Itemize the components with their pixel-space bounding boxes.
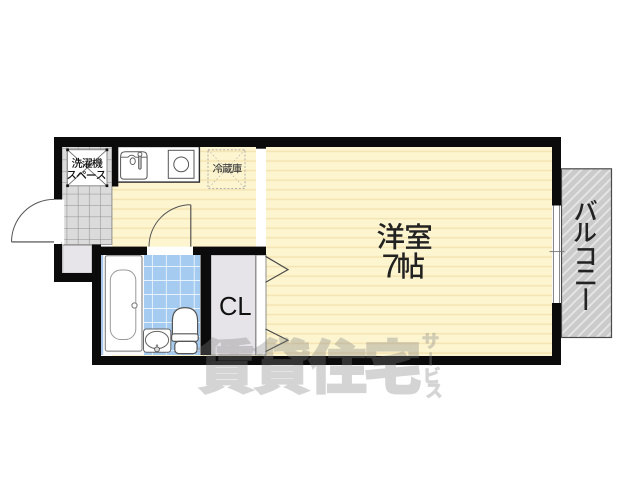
svg-text:7: 7 bbox=[382, 248, 400, 285]
svg-text:CL: CL bbox=[219, 293, 252, 321]
